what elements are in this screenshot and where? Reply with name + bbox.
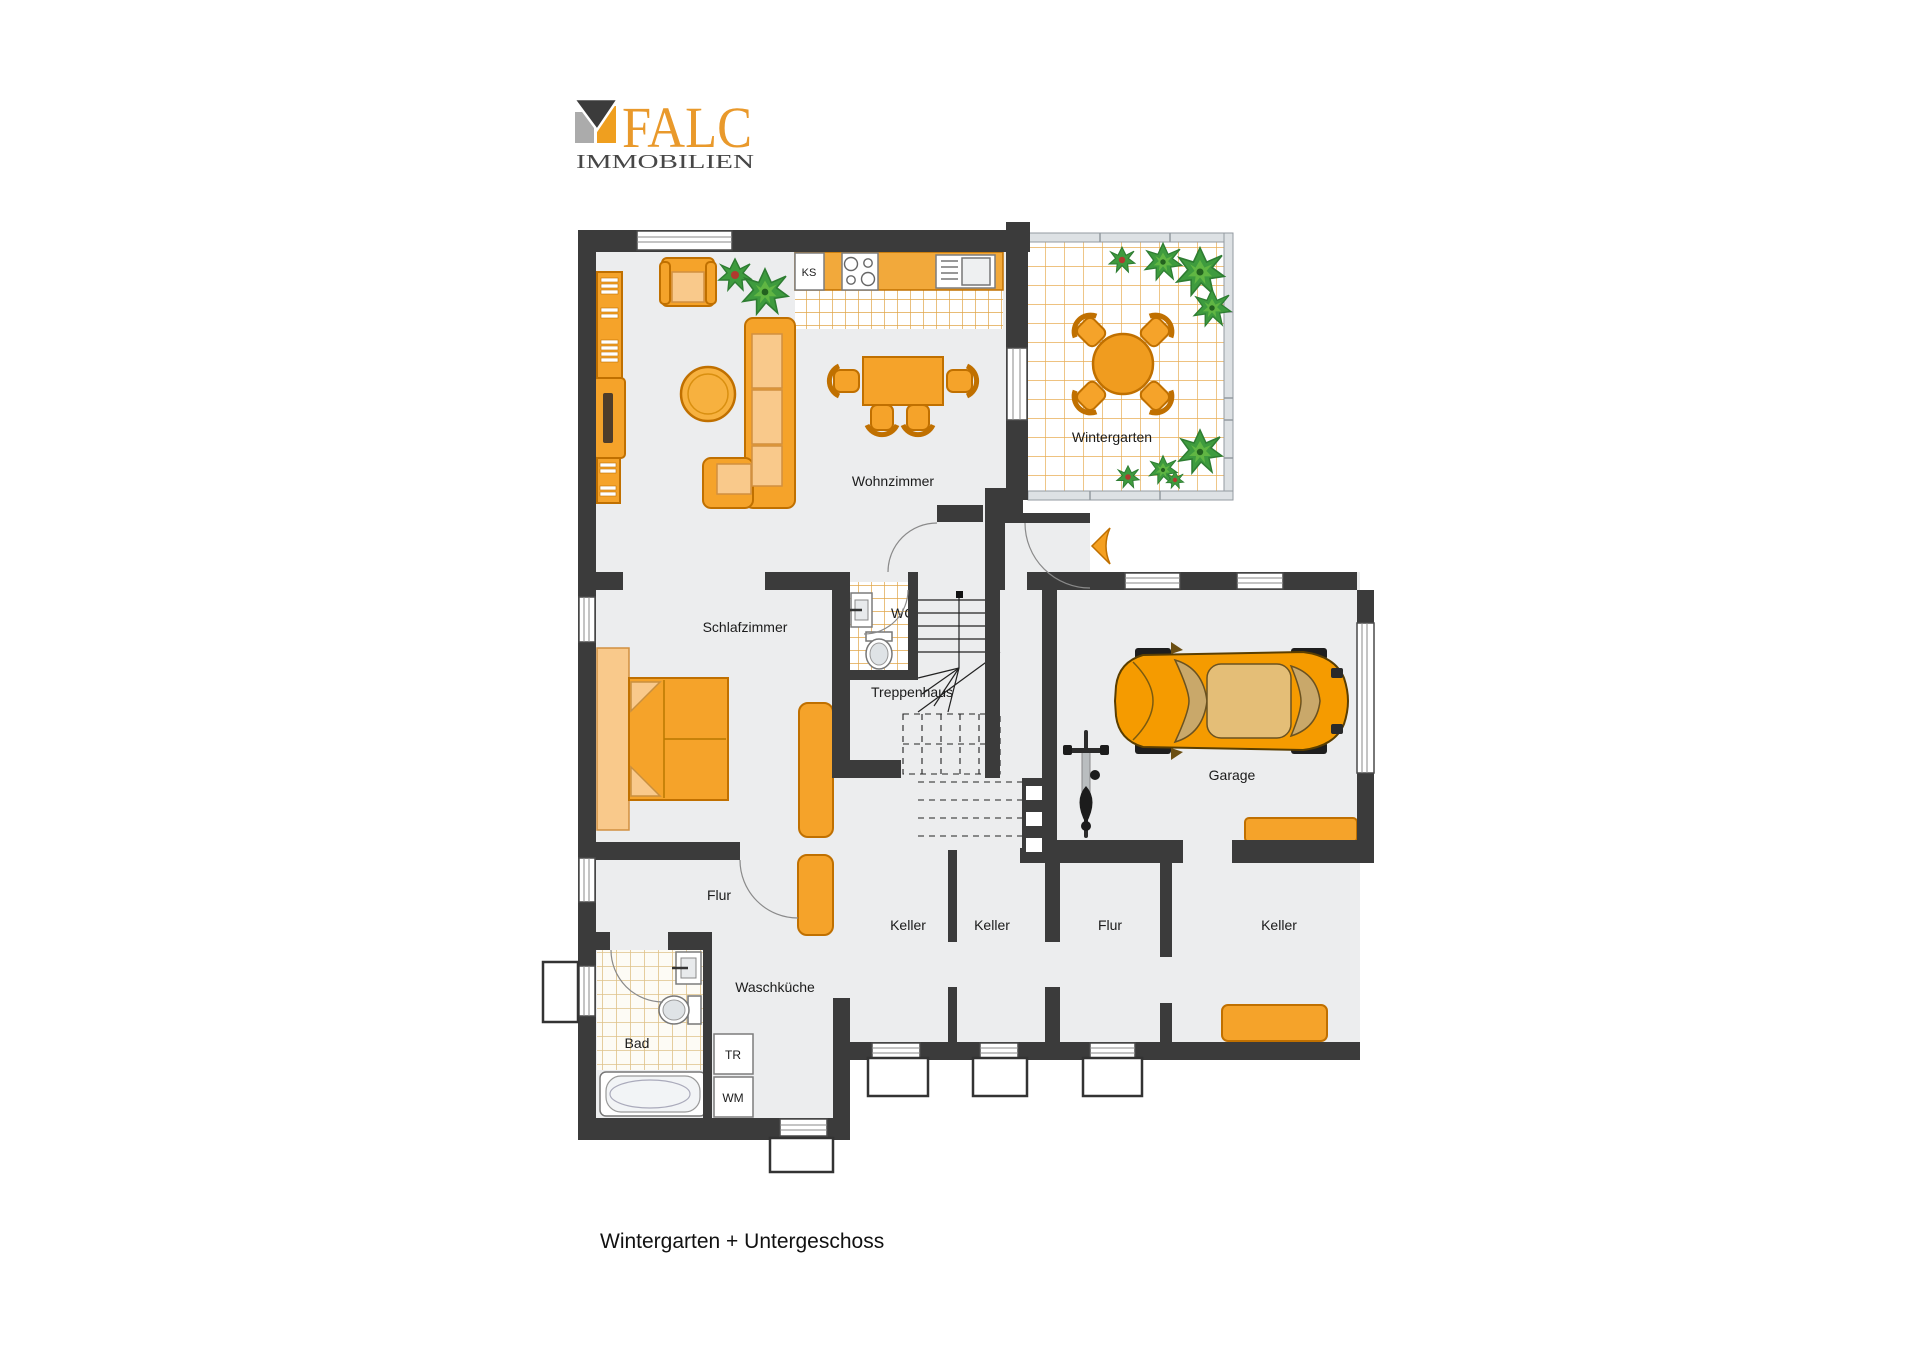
plan-caption: Wintergarten + Untergeschoss [600, 1230, 884, 1253]
garage-workbench [1245, 818, 1357, 842]
dryer-label: TR [725, 1048, 741, 1062]
bathroom: Bad [597, 950, 706, 1116]
room-label-bad: Bad [625, 1035, 650, 1051]
logo-subtitle: IMMOBILIEN [576, 151, 754, 173]
bookshelf-2 [597, 458, 620, 503]
stair-newel [956, 591, 963, 598]
rack-notches [1026, 786, 1042, 852]
room-label-garage: Garage [1209, 767, 1256, 783]
coffee-table [681, 367, 735, 421]
window-keller-1 [872, 1043, 920, 1059]
kitchen: KS [795, 252, 1003, 329]
bad-sink [672, 952, 701, 984]
entry-step-bottom [770, 1138, 833, 1172]
room-label-wohnzimmer: Wohnzimmer [852, 473, 935, 489]
window-keller-2 [980, 1043, 1018, 1059]
kitchen-sink [936, 255, 995, 288]
kitchen-splashback-tiles [795, 290, 1003, 329]
wc-sink [847, 593, 872, 627]
glass-wall-top [1028, 233, 1233, 242]
light-well-1 [868, 1058, 928, 1096]
window-left-flur [579, 858, 595, 902]
tv-board [593, 378, 625, 458]
room-label-keller-3: Keller [1261, 917, 1297, 933]
window-keller-3 [1090, 1043, 1135, 1059]
window-garage-right [1357, 623, 1374, 773]
glass-wall-right [1224, 233, 1233, 500]
light-well-3 [1083, 1058, 1142, 1096]
dining-table [863, 357, 943, 405]
window-garage-top-1 [1125, 573, 1180, 589]
room-label-flur-lower: Flur [1098, 917, 1122, 933]
window-garage-top-2 [1237, 573, 1283, 589]
room-label-treppenhaus: Treppenhaus [871, 684, 953, 700]
fridge-label: KS [802, 267, 817, 279]
room-label-keller-1: Keller [890, 917, 926, 933]
wintergarten: Wintergarten [1028, 233, 1233, 500]
armchair [660, 258, 716, 306]
hall-cabinet [798, 855, 833, 935]
bad-toilet [659, 996, 701, 1024]
stove [842, 253, 878, 290]
round-table [1093, 334, 1153, 394]
window-top [637, 231, 732, 250]
window-right-wohnzimmer [1007, 348, 1027, 420]
wardrobe [799, 703, 833, 837]
floorplan-canvas: FALC IMMOBILIEN [0, 0, 1920, 1357]
car [1115, 642, 1348, 760]
entry-step-left [543, 962, 578, 1022]
keller-bench [1222, 1005, 1327, 1041]
falc-logo: FALC IMMOBILIEN [574, 95, 754, 173]
room-label-keller-2: Keller [974, 917, 1010, 933]
room-label-waschkueche: Waschküche [735, 979, 815, 995]
entrance-arrow-icon [1092, 528, 1110, 564]
window-waschkueche [780, 1119, 827, 1136]
wc-toilet [866, 632, 892, 669]
window-left-schlafzimmer [579, 597, 595, 642]
light-well-2 [973, 1058, 1027, 1096]
washer-label: WM [722, 1091, 743, 1105]
room-label-schlafzimmer: Schlafzimmer [703, 619, 788, 635]
page: { "header": { "brand": "FALC", "brand_su… [0, 0, 1920, 1357]
bookshelf-1 [597, 272, 622, 378]
bathtub [600, 1072, 706, 1116]
wc-room: WC [847, 582, 914, 672]
door-left-exterior [579, 966, 595, 1016]
glass-wall-bottom [1028, 491, 1233, 500]
room-label-flur-upper: Flur [707, 887, 731, 903]
room-label-wintergarten: Wintergarten [1072, 429, 1152, 445]
